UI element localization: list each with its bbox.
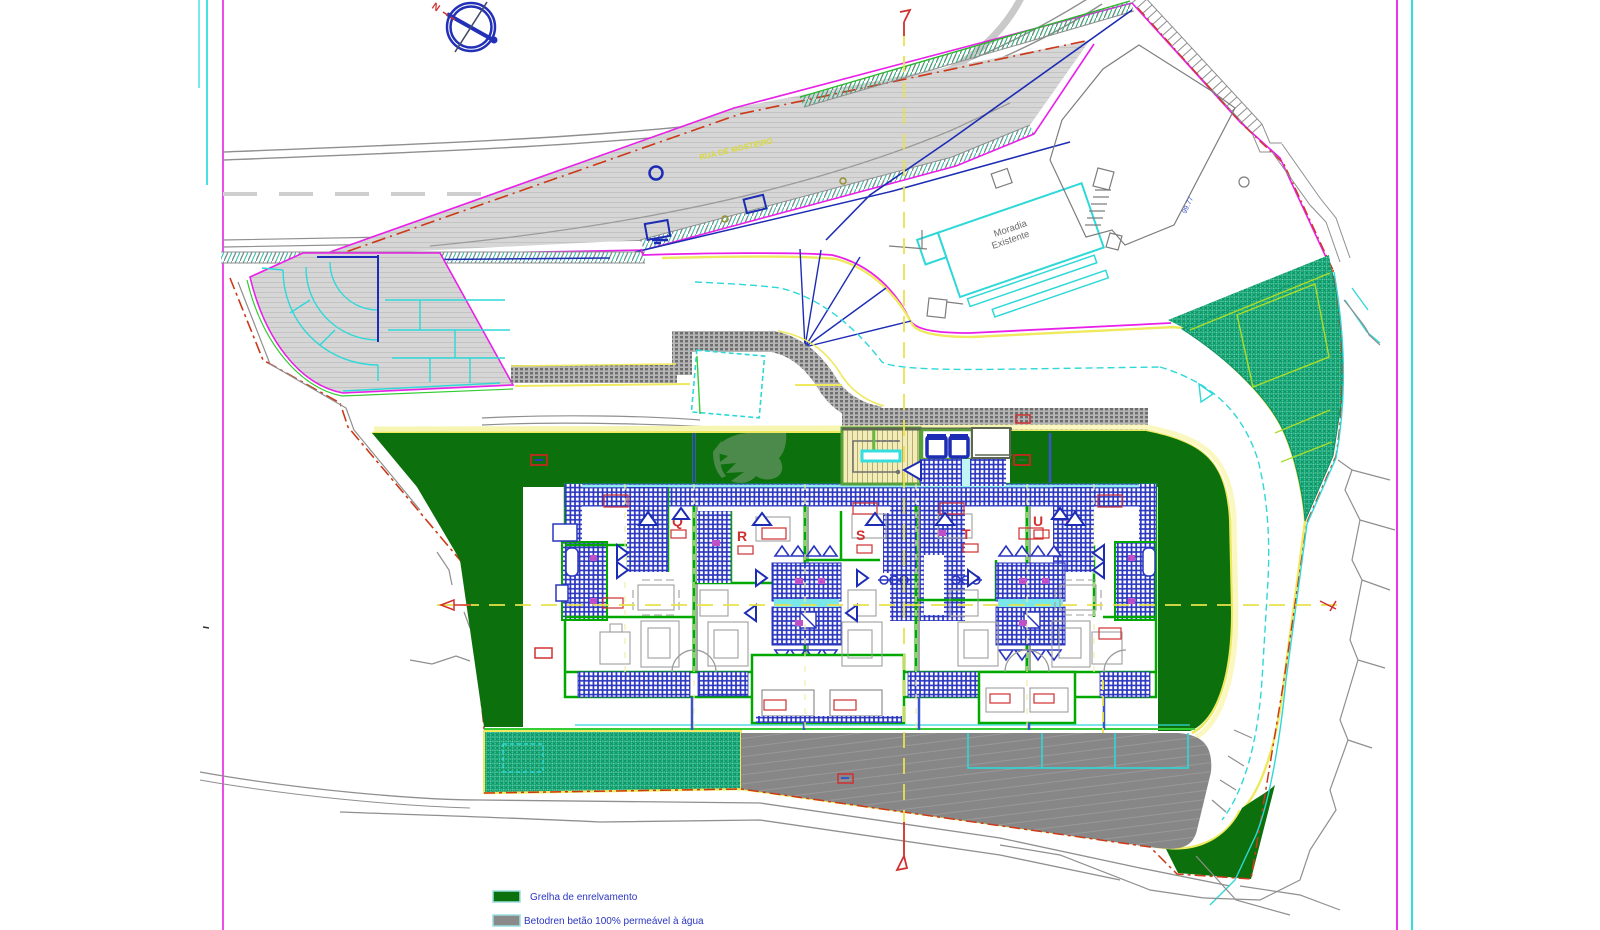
svg-text:R: R [737,528,747,544]
svg-text:T: T [962,526,971,542]
svg-text:Betodren betão 100% permeável: Betodren betão 100% permeável à água [524,916,704,927]
svg-text:Grelha de enrelvamento: Grelha de enrelvamento [530,892,638,903]
svg-text:S: S [856,527,865,543]
svg-text:U: U [1033,513,1043,529]
